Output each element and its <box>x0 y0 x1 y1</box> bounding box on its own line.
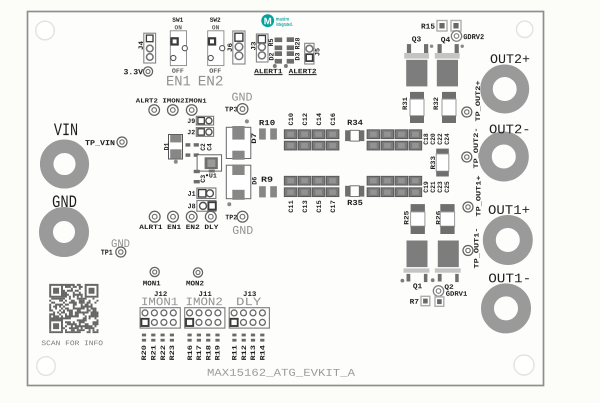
svg-text:R23: R23 <box>169 345 176 361</box>
svg-text:R19: R19 <box>215 345 222 361</box>
svg-text:SW2: SW2 <box>210 17 221 24</box>
svg-text:R28: R28 <box>295 37 302 49</box>
svg-text:C18: C18 <box>423 133 430 145</box>
svg-text:R9: R9 <box>261 176 273 185</box>
svg-text:R5: R5 <box>268 38 275 46</box>
svg-text:C21: C21 <box>430 181 437 193</box>
svg-text:R17: R17 <box>196 345 203 361</box>
svg-text:ON: ON <box>174 24 182 31</box>
svg-text:J9: J9 <box>187 118 195 126</box>
svg-text:U1: U1 <box>209 173 217 180</box>
svg-text:R13: R13 <box>250 345 257 361</box>
svg-text:R35: R35 <box>347 200 363 208</box>
svg-text:ALRT1 EN1 EN2 DLY: ALRT1 EN1 EN2 DLY <box>139 224 218 232</box>
svg-text:D1: D1 <box>163 142 170 150</box>
svg-text:OUT2-: OUT2- <box>489 122 531 137</box>
svg-text:C14: C14 <box>316 113 324 126</box>
svg-text:C24: C24 <box>444 133 451 145</box>
svg-text:J1: J1 <box>188 191 196 199</box>
svg-text:GND: GND <box>52 193 77 213</box>
svg-text:R31: R31 <box>402 97 410 110</box>
svg-text:C16: C16 <box>330 113 338 126</box>
svg-text:R7: R7 <box>410 299 419 307</box>
svg-text:R21: R21 <box>151 345 158 361</box>
svg-text:IMON1: IMON1 <box>141 297 179 309</box>
svg-text:SW1: SW1 <box>172 17 183 24</box>
svg-text:D7: D7 <box>251 133 259 144</box>
svg-text:MAX15162_ATG_EVKIT_A: MAX15162_ATG_EVKIT_A <box>207 368 356 380</box>
svg-text:R18: R18 <box>205 345 212 361</box>
svg-text:TP_OUT2-: TP_OUT2- <box>473 128 481 169</box>
svg-text:GND: GND <box>111 238 130 251</box>
svg-text:C20: C20 <box>430 133 437 145</box>
svg-text:DLY: DLY <box>236 297 262 309</box>
svg-text:C25: C25 <box>444 181 451 193</box>
svg-text:R12: R12 <box>241 345 248 361</box>
svg-text:R34: R34 <box>347 120 363 128</box>
svg-text:R20: R20 <box>141 345 148 361</box>
svg-text:GDRV1: GDRV1 <box>446 291 468 299</box>
svg-text:C3: C3 <box>200 174 207 182</box>
svg-text:VIN: VIN <box>54 121 78 141</box>
svg-text:J2: J2 <box>187 129 195 137</box>
svg-text:J8: J8 <box>188 203 196 211</box>
svg-text:GND: GND <box>232 224 253 238</box>
svg-text:3.3V: 3.3V <box>123 68 143 77</box>
svg-text:TP_OUT2+: TP_OUT2+ <box>475 81 483 122</box>
svg-text:D6: D6 <box>251 177 258 185</box>
svg-text:ALERT2: ALERT2 <box>289 68 317 76</box>
svg-text:SCAN FOR INFO: SCAN FOR INFO <box>41 340 103 348</box>
svg-text:J6: J6 <box>227 43 235 52</box>
svg-text:TP2: TP2 <box>225 214 237 222</box>
svg-text:R15: R15 <box>421 24 435 32</box>
svg-text:J5: J5 <box>315 48 323 56</box>
svg-text:D2: D2 <box>268 52 275 60</box>
svg-text:C19: C19 <box>423 181 430 193</box>
svg-text:C15: C15 <box>316 200 324 213</box>
svg-text:EN1: EN1 <box>166 74 191 90</box>
svg-text:EN2: EN2 <box>198 74 224 90</box>
svg-text:C23: C23 <box>437 181 444 193</box>
svg-text:R11: R11 <box>232 345 239 361</box>
svg-text:TP_VIN: TP_VIN <box>85 140 116 148</box>
svg-text:C22: C22 <box>437 133 444 145</box>
svg-text:C17: C17 <box>330 200 338 213</box>
svg-text:C13: C13 <box>302 200 310 213</box>
svg-text:integrated.: integrated. <box>276 22 293 28</box>
svg-text:MON1: MON1 <box>143 280 161 288</box>
svg-text:GDRV2: GDRV2 <box>463 34 484 42</box>
svg-text:Q3: Q3 <box>412 36 422 44</box>
svg-text:R10: R10 <box>259 119 276 128</box>
svg-text:GND: GND <box>231 91 252 105</box>
svg-text:OUT2+: OUT2+ <box>490 52 530 67</box>
svg-text:TP_OUT1+: TP_OUT1+ <box>476 176 484 217</box>
svg-text:D3: D3 <box>295 52 302 60</box>
svg-text:OUT1+: OUT1+ <box>488 203 530 218</box>
svg-text:M: M <box>264 16 272 27</box>
svg-text:R16: R16 <box>187 345 194 361</box>
svg-text:Q4: Q4 <box>441 37 451 45</box>
svg-text:C4: C4 <box>206 143 213 151</box>
svg-text:J4: J4 <box>138 41 145 50</box>
svg-text:R14: R14 <box>260 345 267 361</box>
svg-text:J3: J3 <box>251 42 259 51</box>
svg-text:IMON2: IMON2 <box>186 297 223 309</box>
svg-text:TP3: TP3 <box>225 106 238 114</box>
svg-text:Q1: Q1 <box>413 283 423 291</box>
svg-text:ALRT2 IMON2IMON1: ALRT2 IMON2IMON1 <box>136 98 207 105</box>
svg-text:ALERT1: ALERT1 <box>254 68 283 76</box>
svg-text:MON2: MON2 <box>186 280 204 288</box>
svg-text:OUT1-: OUT1- <box>488 271 531 286</box>
svg-text:C12: C12 <box>302 113 310 126</box>
svg-text:C11: C11 <box>288 200 296 213</box>
svg-text:R22: R22 <box>160 345 167 361</box>
svg-text:ON: ON <box>212 24 220 31</box>
svg-text:TP_OUT1-: TP_OUT1- <box>474 228 482 269</box>
svg-text:C10: C10 <box>288 113 296 126</box>
svg-text:R32: R32 <box>433 97 441 110</box>
